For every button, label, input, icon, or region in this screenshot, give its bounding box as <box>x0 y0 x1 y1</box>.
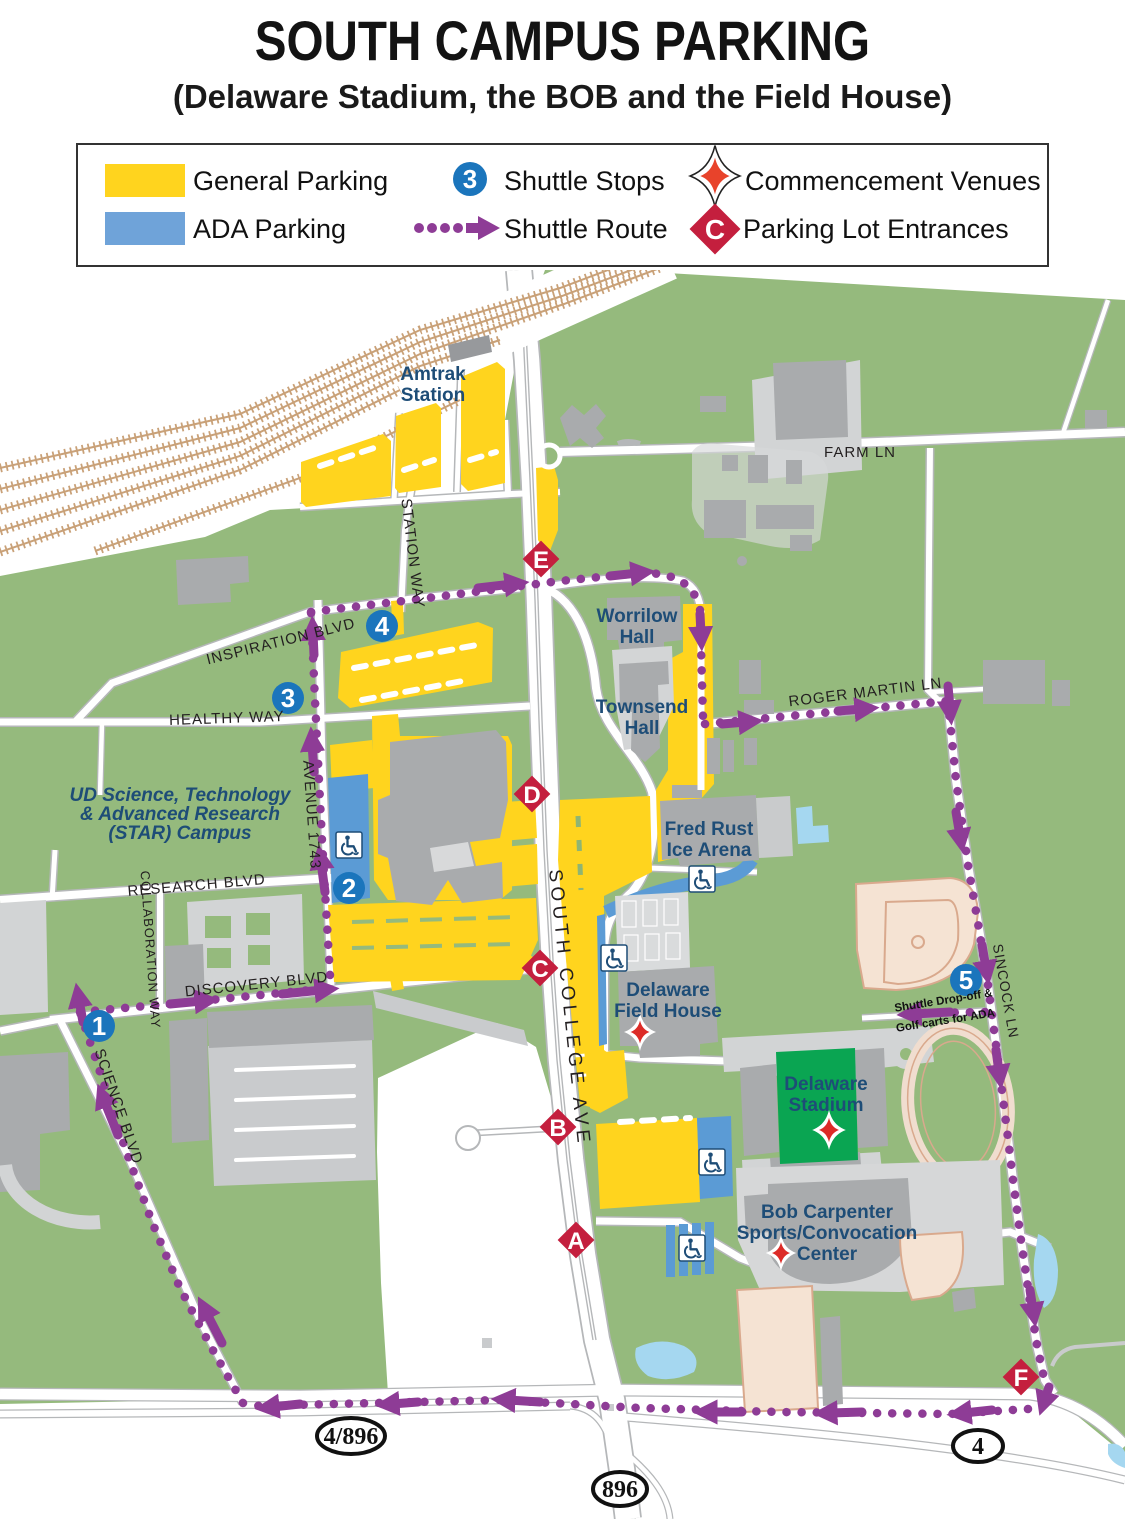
svg-text:4: 4 <box>972 1434 984 1460</box>
svg-text:Amtrak: Amtrak <box>400 364 466 385</box>
svg-text:& Advanced Research: & Advanced Research <box>80 804 280 825</box>
svg-text:Field House: Field House <box>614 1001 722 1022</box>
svg-text:Townsend: Townsend <box>596 697 689 718</box>
svg-text:FARM LN: FARM LN <box>824 444 896 461</box>
svg-text:Delaware: Delaware <box>784 1074 867 1095</box>
svg-text:Station: Station <box>401 385 465 406</box>
svg-text:C: C <box>531 956 548 983</box>
svg-text:A: A <box>567 1228 584 1255</box>
svg-text:Worrilow: Worrilow <box>597 606 678 627</box>
svg-text:Sports/Convocation: Sports/Convocation <box>737 1223 918 1244</box>
svg-text:Delaware: Delaware <box>626 980 709 1001</box>
svg-text:Hall: Hall <box>620 627 655 648</box>
svg-text:4: 4 <box>375 611 390 641</box>
svg-text:Hall: Hall <box>625 718 660 739</box>
svg-text:F: F <box>1014 1365 1029 1392</box>
svg-text:Center: Center <box>797 1244 858 1265</box>
svg-text:1: 1 <box>92 1011 106 1041</box>
svg-text:Ice Arena: Ice Arena <box>667 840 752 861</box>
svg-text:Fred Rust: Fred Rust <box>665 819 754 840</box>
svg-text:896: 896 <box>602 1477 638 1503</box>
svg-text:D: D <box>523 782 540 809</box>
svg-text:(STAR) Campus: (STAR) Campus <box>108 823 251 844</box>
svg-text:2: 2 <box>342 873 356 903</box>
svg-text:E: E <box>533 547 549 574</box>
svg-text:4/896: 4/896 <box>324 1424 379 1450</box>
svg-text:B: B <box>549 1115 566 1142</box>
svg-text:Stadium: Stadium <box>789 1095 864 1116</box>
svg-text:C: C <box>705 214 725 245</box>
svg-text:UD Science, Technology: UD Science, Technology <box>69 785 291 806</box>
svg-text:Bob Carpenter: Bob Carpenter <box>761 1202 894 1223</box>
